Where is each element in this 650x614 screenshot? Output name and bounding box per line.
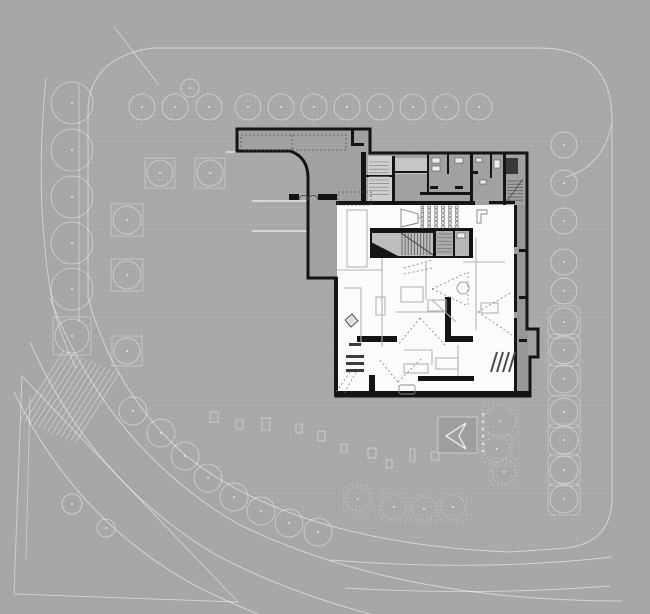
wall: [489, 201, 515, 204]
seat: [435, 226, 438, 229]
wall: [519, 249, 527, 252]
tree-trunk-dot: [445, 106, 447, 108]
stair-divider: [469, 229, 472, 257]
tree-trunk-dot: [260, 510, 262, 512]
tree-trunk-dot: [174, 106, 176, 108]
seat: [456, 206, 459, 209]
wc-fixture: [432, 166, 440, 171]
seat: [421, 222, 424, 225]
wall: [503, 154, 506, 205]
seat: [449, 222, 452, 225]
tree-trunk-dot: [563, 220, 565, 222]
stair-divider: [453, 229, 455, 257]
tree-trunk-dot: [126, 350, 128, 352]
seat: [428, 226, 431, 229]
marker: [438, 417, 477, 453]
wall: [336, 201, 475, 205]
gallery-wall: [369, 375, 375, 393]
tree-trunk-dot: [288, 522, 290, 524]
tree-trunk-dot: [159, 172, 161, 174]
tree-trunk-dot: [563, 378, 565, 380]
tree-trunk-dot: [563, 439, 565, 441]
tree-trunk-dot: [357, 498, 359, 500]
stair-shaft-floor: [368, 156, 392, 203]
tree-trunk-dot: [208, 106, 210, 108]
tree-trunk-dot: [503, 471, 505, 473]
seat: [421, 206, 424, 209]
seat: [421, 218, 424, 221]
tree-trunk-dot: [499, 420, 501, 422]
seat: [442, 210, 445, 213]
wc-fixture: [476, 158, 482, 162]
wall: [361, 152, 366, 204]
wall: [455, 186, 463, 189]
wall: [335, 391, 531, 396]
bench: [349, 343, 361, 346]
tree-trunk-dot: [346, 106, 348, 108]
seat: [421, 226, 424, 229]
tree-trunk-dot: [317, 531, 319, 533]
tree-trunk-dot: [563, 469, 565, 471]
tree-trunk-dot: [184, 455, 186, 457]
tree-trunk-dot: [280, 106, 282, 108]
tree-trunk-dot: [563, 261, 565, 263]
seat: [442, 206, 445, 209]
tree-trunk-dot: [563, 411, 565, 413]
gallery-wall: [418, 376, 474, 381]
wall: [514, 205, 517, 247]
gallery-wall: [451, 336, 473, 342]
tree-trunk-dot: [71, 102, 73, 104]
seat: [428, 210, 431, 213]
site-plan: [0, 0, 650, 614]
seat: [456, 214, 459, 217]
stair-room-a: [436, 231, 453, 255]
tree-trunk-dot: [563, 182, 565, 184]
tree-trunk-dot: [393, 506, 395, 508]
tree-trunk-dot: [412, 106, 414, 108]
seat: [449, 210, 452, 213]
elevator-core: [506, 158, 518, 174]
stair-divider: [433, 229, 436, 257]
wall: [351, 143, 364, 146]
wc-fixture: [494, 160, 500, 168]
seat: [428, 214, 431, 217]
tree-trunk-dot: [126, 219, 128, 221]
wall: [470, 171, 478, 174]
seat: [456, 226, 459, 229]
bench: [346, 355, 364, 358]
wc-fixture: [480, 180, 486, 184]
tree-trunk-dot: [71, 335, 73, 337]
tree-trunk-dot: [71, 196, 73, 198]
tree-trunk-dot: [563, 321, 565, 323]
gallery-wall: [357, 336, 397, 342]
seat: [428, 206, 431, 209]
tree-trunk-dot: [209, 172, 211, 174]
seat: [435, 210, 438, 213]
seat: [435, 206, 438, 209]
seat: [449, 214, 452, 217]
seat: [435, 222, 438, 225]
seat: [449, 206, 452, 209]
floor-plan-drawing: [0, 0, 650, 614]
tree-trunk-dot: [563, 290, 565, 292]
direction-marker-tile: [438, 417, 477, 453]
seat: [442, 218, 445, 221]
seat: [428, 218, 431, 221]
seat: [421, 210, 424, 213]
tree-trunk-dot: [189, 87, 191, 89]
seat: [456, 210, 459, 213]
tree-trunk-dot: [496, 448, 498, 450]
tree-trunk-dot: [563, 498, 565, 500]
seat: [442, 214, 445, 217]
seat: [449, 218, 452, 221]
seat: [449, 226, 452, 229]
tree-trunk-dot: [233, 496, 235, 498]
tree-trunk-dot: [247, 106, 249, 108]
wall: [427, 154, 429, 193]
wall: [430, 186, 438, 189]
entry-stub-wall: [318, 194, 337, 200]
entry-stub-wall: [289, 194, 299, 200]
tree-trunk-dot: [563, 349, 565, 351]
seat: [456, 218, 459, 221]
seat: [456, 222, 459, 225]
seat: [435, 214, 438, 217]
tree-trunk-dot: [132, 410, 134, 412]
seat: [428, 222, 431, 225]
tree-trunk-dot: [563, 144, 565, 146]
seat: [442, 222, 445, 225]
tree-trunk-dot: [71, 288, 73, 290]
tree-trunk-dot: [126, 274, 128, 276]
wall: [447, 154, 449, 174]
tree-trunk-dot: [478, 106, 480, 108]
tree-trunk-dot: [71, 242, 73, 244]
bench: [346, 369, 364, 372]
wall: [519, 296, 527, 299]
wall: [392, 171, 428, 173]
stair-fixture: [457, 233, 465, 238]
tree-trunk-dot: [423, 508, 425, 510]
tree-trunk-dot: [160, 432, 162, 434]
seat: [421, 214, 424, 217]
tree-trunk-dot: [71, 149, 73, 151]
wall: [519, 339, 527, 342]
bench: [346, 362, 364, 365]
tree-trunk-dot: [71, 503, 73, 505]
tree-trunk-dot: [141, 106, 143, 108]
tree-trunk-dot: [207, 477, 209, 479]
tree-trunk-dot: [105, 527, 107, 529]
wall: [334, 277, 338, 396]
tree-trunk-dot: [379, 106, 381, 108]
tree-trunk-dot: [313, 106, 315, 108]
tree-trunk-dot: [452, 506, 454, 508]
wall: [514, 254, 517, 312]
wall: [490, 154, 492, 178]
wall: [392, 156, 395, 203]
wc-fixture: [432, 158, 440, 163]
wc-fixture: [455, 158, 463, 163]
wall: [470, 154, 473, 205]
seat: [442, 226, 445, 229]
seat: [435, 218, 438, 221]
